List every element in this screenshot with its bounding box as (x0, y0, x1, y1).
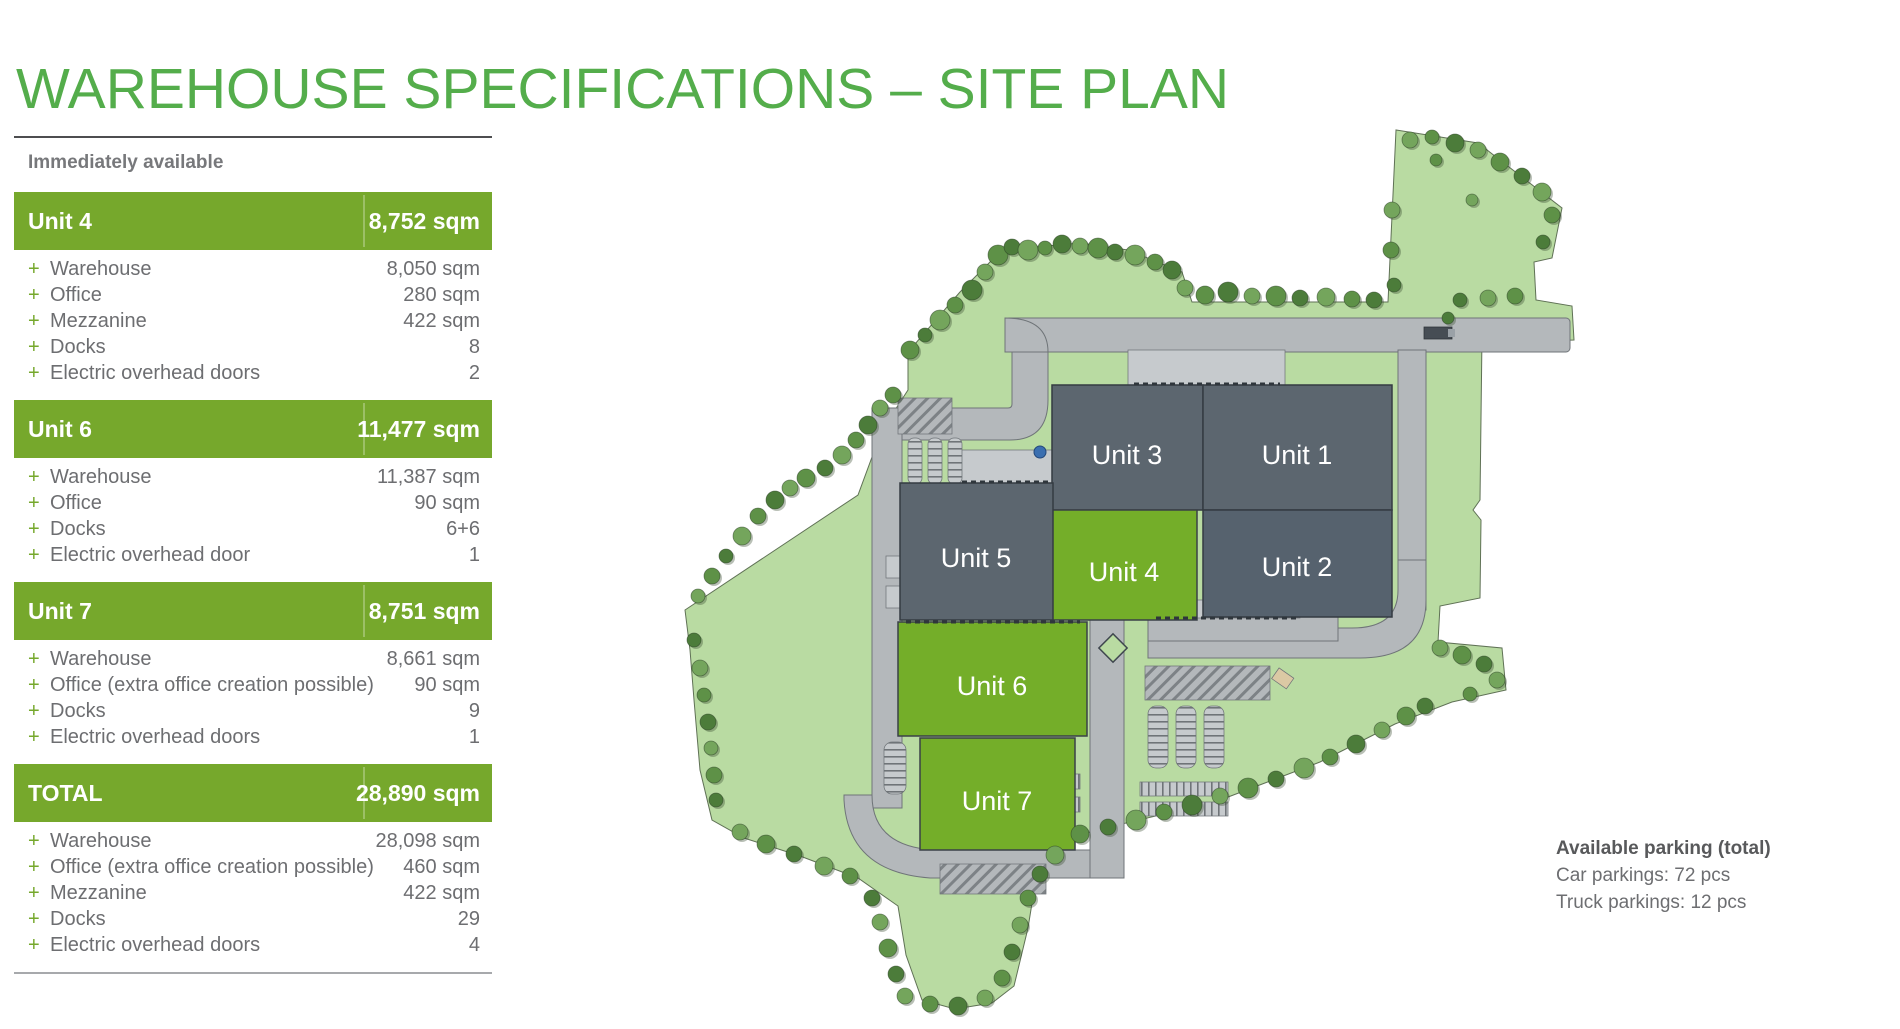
tree-icon (901, 341, 919, 359)
tree-icon (833, 446, 851, 464)
tree-icon (1317, 288, 1335, 306)
tree-icon (1046, 846, 1064, 864)
tree-icon (817, 460, 833, 476)
tree-icon (1480, 290, 1496, 306)
tree-icon (697, 688, 711, 702)
tree-icon (786, 846, 802, 862)
tree-icon (1018, 240, 1038, 260)
tree-icon (1156, 804, 1172, 820)
tree-icon (977, 990, 993, 1006)
tree-icon (1347, 735, 1365, 753)
tree-icon (1266, 286, 1286, 306)
tree-icon (691, 589, 705, 603)
tree-icon (1177, 280, 1193, 296)
tree-icon (1126, 810, 1146, 830)
tree-icon (897, 988, 913, 1004)
tree-icon (1196, 286, 1214, 304)
tree-icon (1294, 758, 1314, 778)
map-label-unit-2: Unit 2 (1262, 552, 1333, 582)
tree-icon (1417, 698, 1433, 714)
tree-icon (1466, 194, 1478, 206)
tree-icon (1344, 291, 1360, 307)
tree-icon (797, 469, 815, 487)
map-label-unit-1: Unit 1 (1262, 440, 1333, 470)
tree-icon (1387, 278, 1401, 292)
tree-icon (864, 890, 880, 906)
tree-icon (1446, 134, 1464, 152)
parking-note: Available parking (total) Car parkings: … (1556, 835, 1771, 916)
tree-icon (977, 264, 993, 280)
tree-icon (1020, 890, 1036, 906)
tree-icon (1463, 687, 1477, 701)
tree-icon (732, 824, 748, 840)
tree-icon (1514, 168, 1530, 184)
tree-icon (1012, 917, 1028, 933)
tree-icon (1489, 672, 1505, 688)
tree-icon (1038, 241, 1052, 255)
tree-icon (949, 997, 967, 1015)
tree-icon (872, 914, 888, 930)
tree-icon (1004, 944, 1020, 960)
tree-icon (1053, 235, 1071, 253)
tree-icon (750, 508, 766, 524)
tree-icon (1212, 788, 1228, 804)
tree-icon (704, 741, 718, 755)
map-label-unit-5: Unit 5 (941, 543, 1012, 573)
tree-icon (1004, 239, 1020, 255)
tree-icon (1182, 795, 1202, 815)
tree-icon (1107, 244, 1123, 260)
tree-icon (1397, 707, 1415, 725)
tree-icon (1322, 749, 1338, 765)
tree-icon (757, 835, 775, 853)
tree-icon (815, 857, 833, 875)
tree-icon (706, 767, 722, 783)
tree-icon (1533, 183, 1551, 201)
tree-icon (1218, 282, 1238, 302)
tree-icon (1071, 825, 1089, 843)
parking-note-title: Available parking (total) (1556, 835, 1771, 862)
tree-icon (872, 400, 888, 416)
tree-icon (1238, 778, 1258, 798)
tree-icon (1432, 640, 1448, 656)
tree-icon (1544, 207, 1560, 223)
tree-icon (918, 328, 932, 342)
tree-icon (1032, 866, 1048, 882)
map-label-unit-4: Unit 4 (1089, 557, 1160, 587)
tree-icon (888, 966, 904, 982)
tree-icon (687, 633, 701, 647)
tree-icon (1268, 771, 1284, 787)
tree-icon (1536, 235, 1550, 249)
tree-icon (859, 416, 877, 434)
tree-icon (922, 996, 938, 1012)
pond-marker (1034, 446, 1046, 458)
truck-parking-central (1145, 666, 1270, 700)
truck-icon (1424, 327, 1455, 339)
tree-icon (1100, 819, 1116, 835)
map-label-unit-6: Unit 6 (957, 671, 1028, 701)
tree-icon (1507, 288, 1523, 304)
tree-icon (1430, 154, 1442, 166)
tree-icon (1402, 132, 1418, 148)
tree-icon (700, 714, 716, 730)
tree-icon (930, 310, 950, 330)
tree-icon (1292, 290, 1308, 306)
tree-icon (1384, 202, 1400, 218)
tree-icon (709, 793, 723, 807)
tree-icon (1491, 153, 1509, 171)
tree-icon (782, 480, 798, 496)
tree-icon (1374, 722, 1390, 738)
tree-icon (848, 432, 864, 448)
tree-icon (719, 549, 733, 563)
tree-icon (947, 297, 963, 313)
tree-icon (1383, 242, 1399, 258)
map-label-unit-7: Unit 7 (962, 786, 1033, 816)
tree-icon (1470, 142, 1486, 158)
tree-icon (1366, 292, 1382, 308)
tree-icon (962, 280, 982, 300)
truck-parking-nw (898, 398, 952, 434)
tree-icon (704, 568, 720, 584)
tree-icon (733, 527, 751, 545)
tree-icon (879, 939, 897, 957)
tree-icon (1442, 312, 1454, 324)
parking-note-cars: Car parkings: 72 pcs (1556, 862, 1771, 889)
tree-icon (1453, 646, 1471, 664)
tree-icon (1088, 238, 1108, 258)
tree-icon (994, 970, 1010, 986)
tree-icon (1125, 245, 1145, 265)
tree-icon (1476, 656, 1492, 672)
map-label-unit-3: Unit 3 (1092, 440, 1163, 470)
page: WAREHOUSE SPECIFICATIONS – SITE PLAN Imm… (0, 0, 1900, 1029)
truck-parking-south (940, 864, 1046, 894)
tree-icon (885, 387, 901, 403)
tree-icon (1147, 254, 1163, 270)
tree-icon (1453, 293, 1467, 307)
tree-icon (692, 660, 708, 676)
tree-icon (1425, 130, 1439, 144)
tree-icon (842, 868, 858, 884)
tree-icon (1072, 238, 1088, 254)
parking-note-trucks: Truck parkings: 12 pcs (1556, 889, 1771, 916)
tree-icon (1163, 261, 1181, 279)
tree-icon (1244, 288, 1260, 304)
tree-icon (766, 491, 784, 509)
